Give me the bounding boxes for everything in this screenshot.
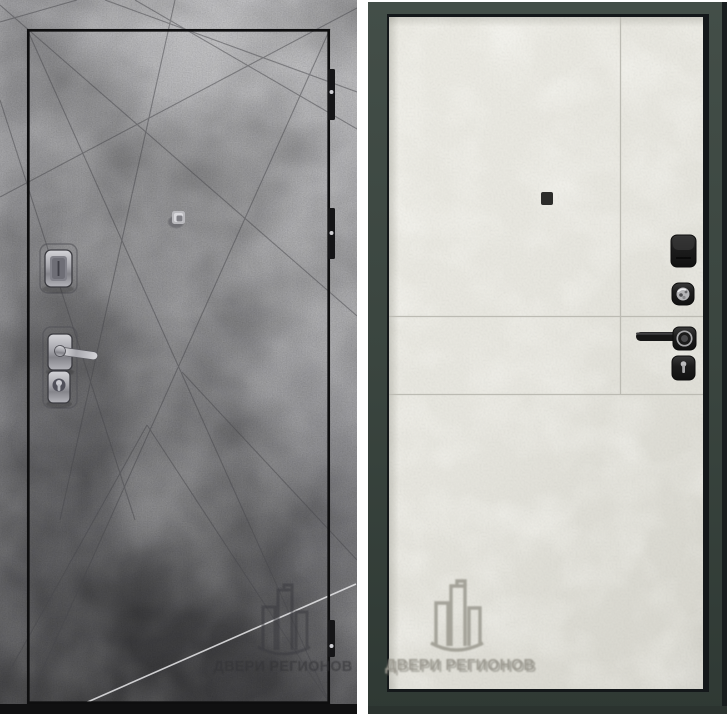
svg-text:ДВЕРИ РЕГИОНОВ: ДВЕРИ РЕГИОНОВ	[385, 657, 535, 674]
svg-text:ДВЕРИ РЕГИОНОВ: ДВЕРИ РЕГИОНОВ	[214, 659, 353, 675]
